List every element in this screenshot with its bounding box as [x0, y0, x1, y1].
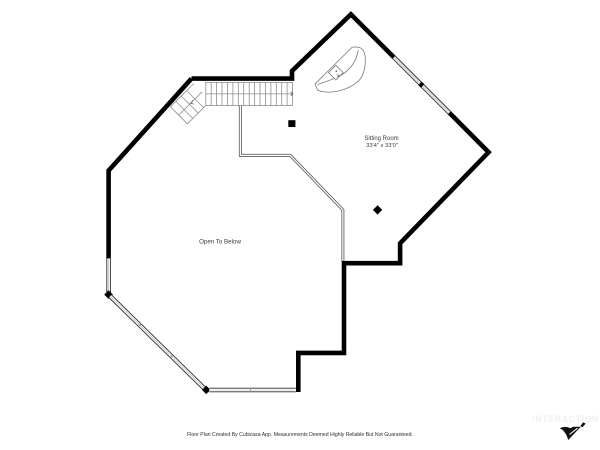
svg-text:INTERACTION: INTERACTION: [532, 414, 599, 424]
svg-text:33'4" x 33'0": 33'4" x 33'0": [366, 143, 398, 149]
svg-text:Floor Plan Created By Cubicasa: Floor Plan Created By Cubicasa App. Meas…: [187, 432, 413, 438]
svg-text:Open To Below: Open To Below: [199, 239, 241, 246]
svg-text:Sitting Room: Sitting Room: [364, 136, 398, 142]
